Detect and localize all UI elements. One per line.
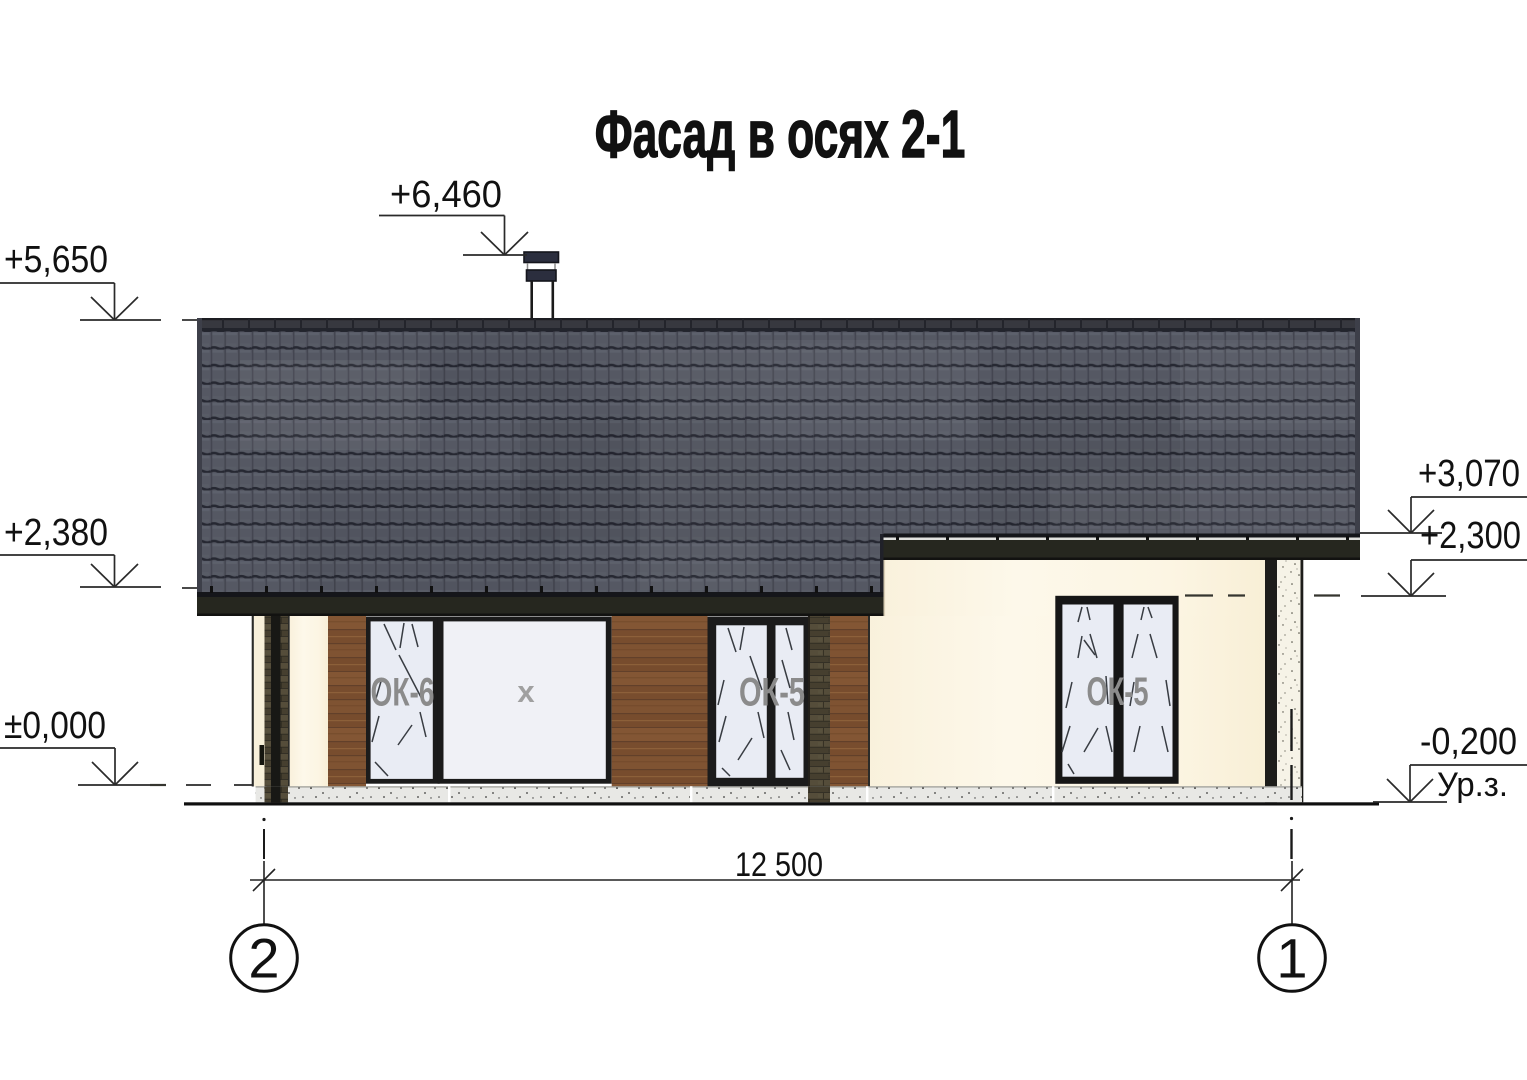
svg-text:+5,650: +5,650 — [4, 239, 108, 281]
svg-text:x: x — [517, 674, 535, 709]
svg-text:+3,070: +3,070 — [1418, 453, 1520, 495]
svg-text:-0,200: -0,200 — [1420, 721, 1517, 763]
svg-text:±0,000: ±0,000 — [4, 705, 106, 747]
svg-text:Ур.з.: Ур.з. — [1437, 766, 1508, 804]
svg-text:ОК-6: ОК-6 — [371, 671, 435, 715]
svg-text:1: 1 — [1276, 927, 1307, 990]
svg-text:ОК-5: ОК-5 — [1087, 670, 1149, 714]
svg-text:+2,380: +2,380 — [4, 512, 108, 554]
svg-text:2: 2 — [248, 927, 279, 990]
svg-text:Фасад в осях 2-1: Фасад в осях 2-1 — [595, 98, 965, 172]
svg-text:12 500: 12 500 — [735, 846, 823, 884]
svg-text:ОК-5: ОК-5 — [739, 671, 805, 715]
svg-text:+2,300: +2,300 — [1420, 515, 1521, 557]
svg-text:+6,460: +6,460 — [390, 174, 502, 216]
